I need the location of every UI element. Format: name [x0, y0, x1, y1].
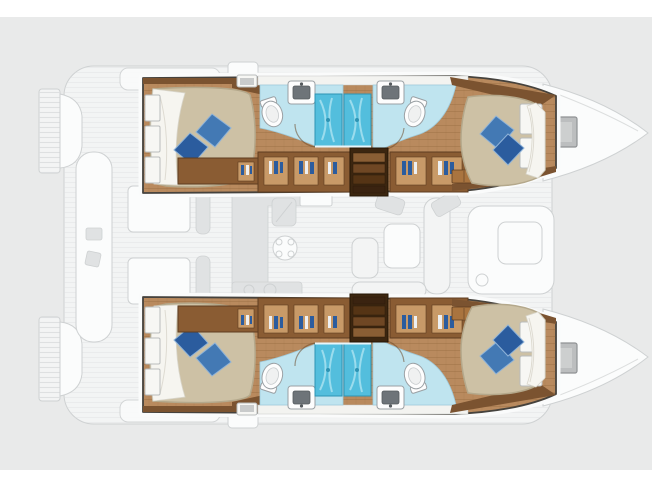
step-tread — [353, 164, 385, 173]
cabin-window — [145, 126, 160, 152]
step-tread — [353, 186, 385, 193]
transom-platform-bottom — [39, 317, 82, 401]
cabin-window — [145, 95, 160, 121]
nav-table — [498, 222, 542, 264]
bench-detail — [86, 228, 102, 240]
saloon-seat — [352, 238, 378, 278]
catamaran-floor-plan — [0, 0, 652, 489]
companionway-steps — [350, 148, 388, 196]
step-tread — [353, 153, 385, 162]
cockpit-center-bench — [76, 152, 112, 342]
catamaran-floor-plan-image — [0, 0, 652, 489]
transom-platform — [39, 89, 82, 173]
hull-interior — [143, 75, 556, 196]
step-tread — [353, 175, 385, 184]
hull-interior-bottom — [143, 294, 556, 415]
bench-detail — [85, 251, 102, 268]
dinette-table — [384, 224, 420, 268]
cabin-window — [145, 157, 160, 183]
